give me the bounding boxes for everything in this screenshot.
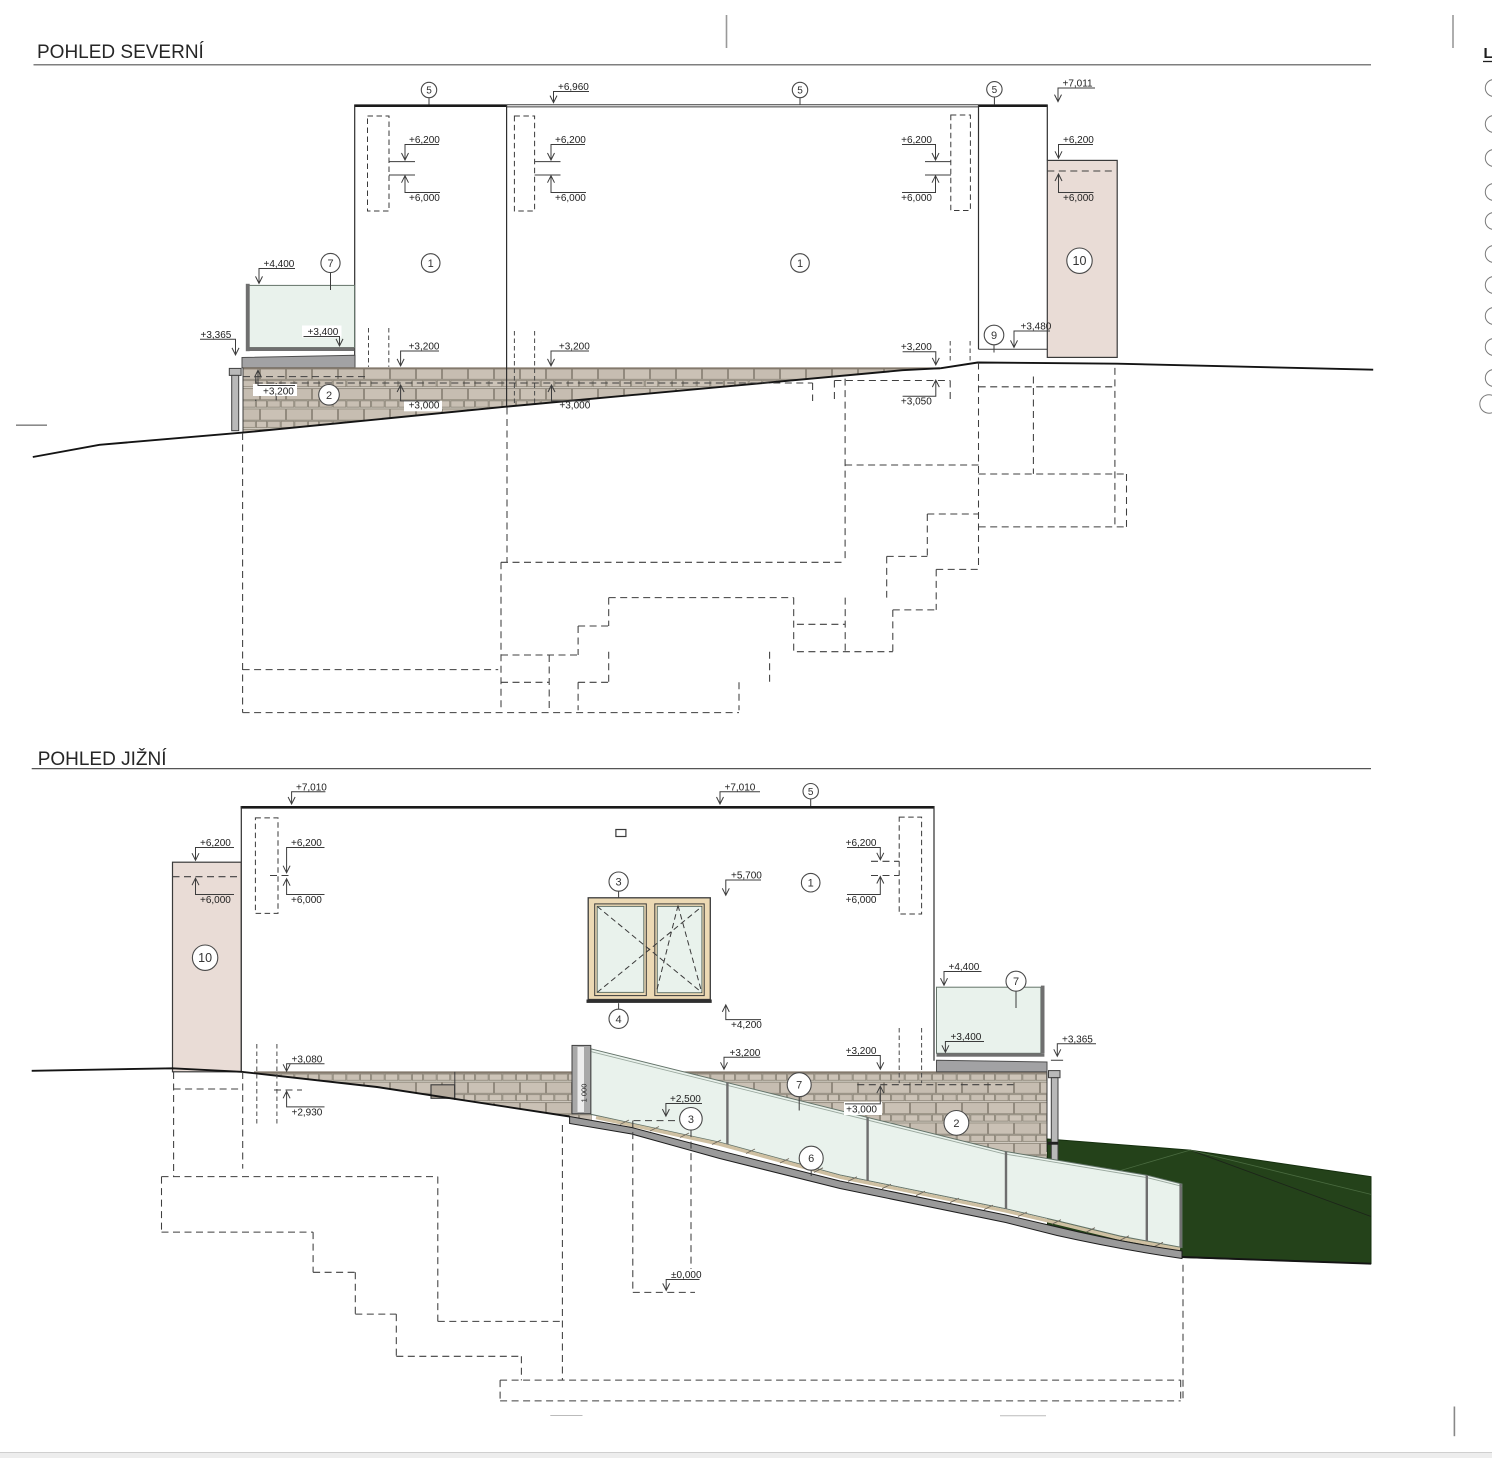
svg-text:+4,400: +4,400 xyxy=(264,259,295,270)
svg-text:+7,010: +7,010 xyxy=(725,782,756,793)
svg-text:±0,000: ±0,000 xyxy=(671,1270,702,1281)
svg-text:+7,010: +7,010 xyxy=(296,782,327,793)
svg-text:5: 5 xyxy=(992,85,998,96)
svg-text:+3,050: +3,050 xyxy=(901,396,932,407)
svg-text:4: 4 xyxy=(616,1014,622,1026)
svg-text:POHLED SEVERNÍ: POHLED SEVERNÍ xyxy=(37,42,205,63)
svg-text:+6,000: +6,000 xyxy=(291,895,322,906)
svg-text:+3,200: +3,200 xyxy=(730,1048,761,1059)
svg-text:+3,200: +3,200 xyxy=(559,342,590,353)
svg-text:+6,200: +6,200 xyxy=(1063,135,1094,146)
svg-text:+3,000: +3,000 xyxy=(559,401,590,412)
svg-text:POHLED JIŽNÍ: POHLED JIŽNÍ xyxy=(38,748,168,770)
svg-text:3: 3 xyxy=(616,877,622,889)
svg-text:+3,200: +3,200 xyxy=(846,1046,877,1057)
svg-text:5: 5 xyxy=(808,787,814,798)
svg-text:+6,000: +6,000 xyxy=(200,895,231,906)
svg-text:+3,200: +3,200 xyxy=(901,342,932,353)
svg-text:+7,011: +7,011 xyxy=(1063,79,1094,90)
svg-text:7: 7 xyxy=(1013,976,1019,988)
svg-text:1: 1 xyxy=(808,878,814,890)
svg-text:+3,000: +3,000 xyxy=(846,1104,877,1115)
svg-text:+6,000: +6,000 xyxy=(1063,193,1094,204)
svg-text:3: 3 xyxy=(688,1114,694,1126)
svg-text:+3,400: +3,400 xyxy=(308,327,339,338)
svg-text:+3,400: +3,400 xyxy=(951,1032,982,1043)
svg-text:+2,500: +2,500 xyxy=(670,1094,701,1105)
svg-text:+3,480: +3,480 xyxy=(1021,321,1052,332)
svg-text:7: 7 xyxy=(327,258,333,270)
svg-text:+6,200: +6,200 xyxy=(846,838,877,849)
svg-text:+6,200: +6,200 xyxy=(901,135,932,146)
svg-text:2: 2 xyxy=(326,390,332,402)
svg-text:+6,960: +6,960 xyxy=(558,82,589,93)
svg-text:+6,000: +6,000 xyxy=(901,193,932,204)
svg-text:+6,000: +6,000 xyxy=(555,193,586,204)
svg-text:+6,000: +6,000 xyxy=(846,895,877,906)
svg-text:6: 6 xyxy=(808,1153,814,1165)
svg-text:L: L xyxy=(1484,45,1492,62)
svg-text:5: 5 xyxy=(797,86,803,97)
svg-text:+6,200: +6,200 xyxy=(200,838,231,849)
svg-text:+3,365: +3,365 xyxy=(201,330,232,341)
svg-text:+3,080: +3,080 xyxy=(292,1054,323,1065)
svg-text:+4,200: +4,200 xyxy=(731,1020,762,1031)
svg-text:+3,000: +3,000 xyxy=(409,401,440,412)
svg-text:1: 1 xyxy=(428,258,434,270)
svg-text:10: 10 xyxy=(198,951,212,965)
svg-text:1 000: 1 000 xyxy=(580,1084,589,1103)
svg-text:2: 2 xyxy=(953,1118,959,1130)
svg-text:+3,200: +3,200 xyxy=(409,342,440,353)
svg-text:5: 5 xyxy=(426,86,432,97)
svg-text:1: 1 xyxy=(797,258,803,270)
svg-text:+2,930: +2,930 xyxy=(292,1107,323,1118)
svg-text:7: 7 xyxy=(796,1080,802,1092)
svg-text:10: 10 xyxy=(1073,254,1087,268)
svg-text:+3,365: +3,365 xyxy=(1062,1034,1093,1045)
svg-text:9: 9 xyxy=(991,330,997,342)
svg-text:+5,700: +5,700 xyxy=(731,871,762,882)
svg-text:+4,400: +4,400 xyxy=(949,962,980,973)
svg-text:+6,200: +6,200 xyxy=(291,838,322,849)
svg-text:+6,200: +6,200 xyxy=(555,135,586,146)
svg-text:+3,200: +3,200 xyxy=(263,386,294,397)
svg-text:+6,000: +6,000 xyxy=(409,193,440,204)
svg-text:+6,200: +6,200 xyxy=(409,135,440,146)
